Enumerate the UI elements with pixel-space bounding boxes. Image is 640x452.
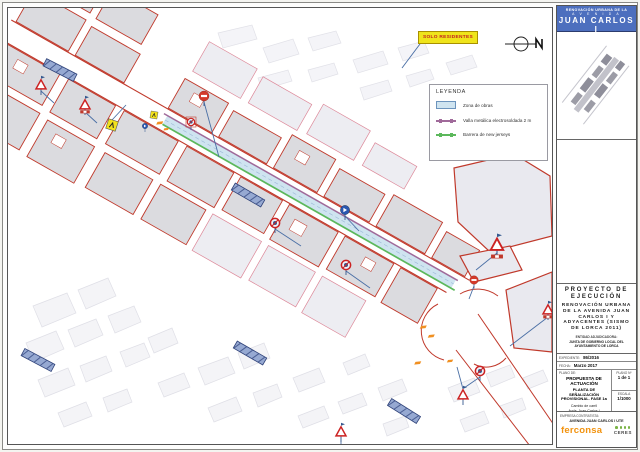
legend-title: LEYENDA [436,89,541,95]
solo-residentes-note: SOLO RESIDENTES [418,31,478,44]
legend-item-fence: Valla metálica electrosoldada 2 m [436,118,541,123]
plano-block: PLANO DE: PROPUESTA DE ACTUACIÓN PLANTA … [557,370,636,411]
plano-meta: PLANO Nº 1 de 1 ESCALA 1/1000 [612,370,636,411]
warning-sign-icon [336,423,346,442]
project-type: PROYECTO DE EJECUCIÓN [560,287,633,301]
contractor-label: EMPRESA CONTRATISTA: [560,414,633,418]
barrier-swatch [436,134,456,136]
escala-value: 1/1000 [612,396,636,401]
legend: LEYENDA Zona de obras Valla metálica ele… [429,84,548,161]
ceres-logo: CERES [614,426,632,435]
legend-item-barrier: Barrera de new jerseys [436,132,541,137]
ferconsa-logo: ferconsa [561,425,602,436]
fecha-row: FECHA: Marzo 2017 [557,362,636,370]
plano-titles: PLANO DE: PROPUESTA DE ACTUACIÓN PLANTA … [557,370,612,411]
plano-de-label: PLANO DE: [559,371,609,375]
escala-cell: ESCALA 1/1000 [612,391,636,411]
expediente-label: EXPEDIENTE: [559,356,580,360]
contractor-panel: EMPRESA CONTRATISTA: AVENIDA JUAN CARLOS… [557,412,636,447]
fence-swatch [436,120,456,122]
entity-name: JUNTA DE GOBIERNO LOCAL DEL AYUNTAMIENTO… [560,340,633,348]
location-map-panel [557,32,636,140]
logo-row: ferconsa CERES [560,425,633,436]
blank-panel [557,140,636,284]
map-canvas [8,8,552,444]
avenue-and-blocks [8,8,512,378]
detour-sign-icon [150,111,158,119]
plano-number-value: 1 de 1 [612,375,636,380]
plan-sheet: LEYENDA Zona de obras Valla metálica ele… [0,0,640,452]
work-zone-swatch [436,101,456,109]
project-panel: PROYECTO DE EJECUCIÓN RENOVACIÓN URBANA … [557,284,636,354]
map-frame: LEYENDA Zona de obras Valla metálica ele… [7,7,553,445]
project-title: RENOVACIÓN URBANA DE LA AVENIDA JUAN CAR… [560,303,633,332]
expediente-row: EXPEDIENTE: 86/2016 [557,354,636,362]
expediente-value: 86/2016 [583,355,599,360]
no-entry-sign-icon [470,276,479,289]
north-arrow-icon [505,37,542,51]
plano-title: PROPUESTA DE ACTUACIÓN [559,376,609,387]
fecha-value: Marzo 2017 [574,363,598,368]
entity-label: ENTIDAD ADJUDICADORA: [560,335,633,339]
plan-info-table: EXPEDIENTE: 86/2016 FECHA: Marzo 2017 PL… [557,354,636,412]
legend-item-work-zone: Zona de obras [436,101,541,109]
titleblock: RENOVACIÓN URBANA DE LA A V E N I D A JU… [556,5,637,448]
plano-detail: Cambio de carril Avda. Juan Carlos I [559,404,609,411]
plano-number-cell: PLANO Nº 1 de 1 [612,370,636,391]
titleblock-header: RENOVACIÓN URBANA DE LA A V E N I D A JU… [557,6,636,32]
location-map [557,32,636,138]
contractor-name: AVENIDA JUAN CARLOS I UTE [560,419,633,423]
ceres-logo-dots [615,426,630,429]
plano-subtitle: PLANTA DE SEÑALIZACIÓN PROVISIONAL. FASE… [559,388,609,402]
fecha-label: FECHA: [559,364,571,368]
